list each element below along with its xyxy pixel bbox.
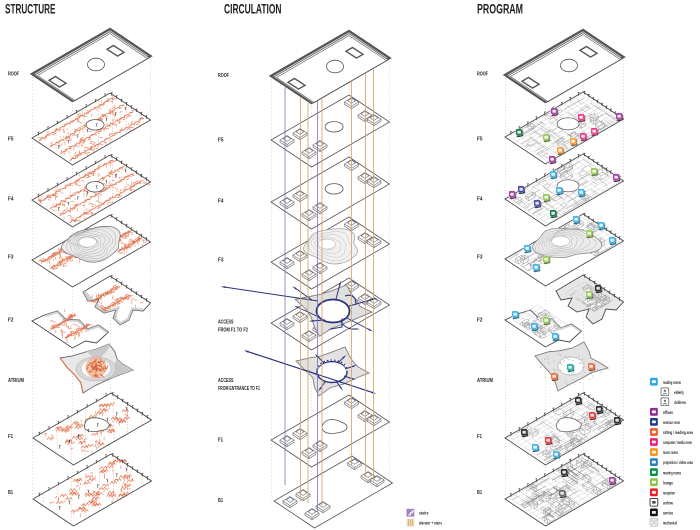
svg-text:STRUCTURE: STRUCTURE [5, 2, 56, 17]
svg-text:FROM ENTRANCE TO F1: FROM ENTRANCE TO F1 [218, 386, 260, 392]
svg-text:ACCESS: ACCESS [218, 378, 234, 384]
svg-text:F4: F4 [8, 197, 14, 203]
svg-text:meeting rooms: meeting rooms [663, 470, 681, 475]
svg-text:childrens: childrens [674, 400, 686, 405]
svg-text:offices: offices [663, 410, 673, 415]
svg-text:CIRCULATION: CIRCULATION [224, 2, 282, 17]
svg-text:B1: B1 [218, 498, 223, 504]
svg-text:reading rooms: reading rooms [663, 380, 681, 385]
svg-text:ROOF: ROOF [218, 73, 229, 79]
svg-text:reception: reception [663, 490, 675, 495]
svg-text:F2: F2 [8, 318, 14, 324]
svg-text:F1: F1 [477, 434, 482, 440]
svg-text:archive: archive [663, 500, 673, 505]
svg-text:F5: F5 [8, 137, 14, 143]
svg-text:stairs: stairs [419, 511, 429, 516]
svg-text:F3: F3 [477, 255, 483, 261]
svg-text:F5: F5 [218, 138, 224, 144]
svg-text:mechanical: mechanical [663, 521, 677, 526]
svg-text:B1: B1 [8, 490, 13, 496]
svg-text:computer / media room: computer / media room [663, 440, 692, 445]
svg-text:F3: F3 [8, 255, 14, 261]
svg-text:seminar room: seminar room [663, 420, 680, 425]
svg-text:ROOF: ROOF [8, 72, 19, 78]
svg-text:ACCESS: ACCESS [218, 320, 234, 326]
svg-text:lounge: lounge [663, 480, 673, 485]
svg-text:PROGRAM: PROGRAM [477, 2, 523, 17]
svg-text:F5: F5 [477, 137, 483, 143]
svg-text:ATRIUM: ATRIUM [8, 378, 24, 384]
svg-text:F1: F1 [218, 438, 223, 444]
svg-text:music rooms: music rooms [663, 450, 678, 455]
svg-text:F1: F1 [8, 434, 13, 440]
svg-text:service: service [663, 510, 673, 515]
svg-text:ATRIUM: ATRIUM [477, 378, 493, 384]
svg-text:elderly: elderly [674, 390, 684, 395]
svg-text:F4: F4 [218, 199, 224, 205]
svg-text:F2: F2 [477, 318, 483, 324]
svg-text:F3: F3 [218, 258, 224, 264]
svg-text:F4: F4 [477, 197, 483, 203]
svg-text:projection / video area: projection / video area [663, 460, 693, 465]
svg-text:sitting / reading area: sitting / reading area [663, 430, 693, 435]
svg-text:elevator + stairs: elevator + stairs [419, 521, 442, 526]
svg-text:FROM F1 TO F2: FROM F1 TO F2 [218, 328, 248, 334]
svg-text:ROOF: ROOF [477, 72, 488, 78]
svg-text:B1: B1 [477, 490, 482, 496]
